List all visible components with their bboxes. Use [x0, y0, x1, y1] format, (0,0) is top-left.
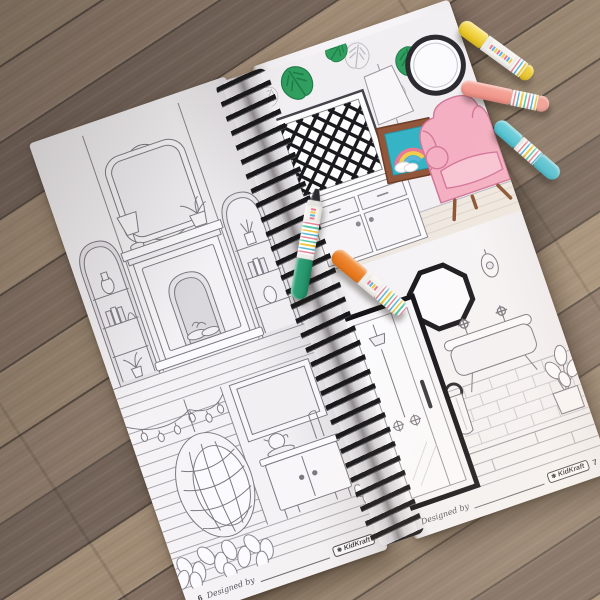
star-icon: ✱: [336, 547, 343, 554]
left-page-number: 6: [197, 593, 204, 600]
marker-nib: [310, 188, 323, 202]
star-icon: ✱: [551, 473, 558, 480]
sconce-right: [477, 247, 501, 280]
product-photo-coloring-book: 6 Designed by ✱KidKraft: [0, 0, 600, 600]
brand-text: KidKraft: [343, 536, 371, 552]
brand-text: KidKraft: [557, 463, 585, 479]
right-page-number: 7: [591, 457, 598, 467]
